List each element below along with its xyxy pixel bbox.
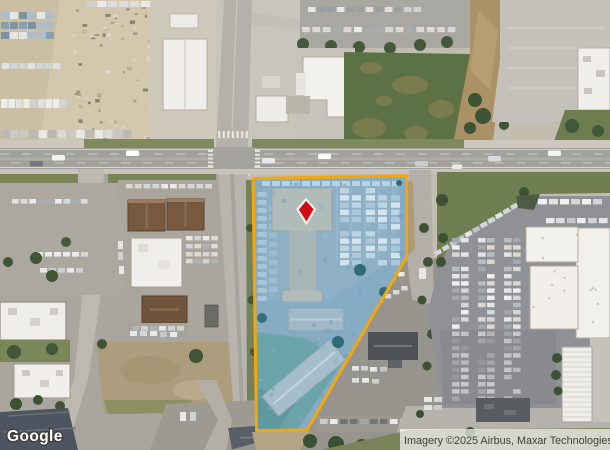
svg-text:Imagery ©2025 Airbus, Maxar Te: Imagery ©2025 Airbus, Maxar Technologies: [404, 435, 610, 447]
svg-text:Google: Google: [7, 428, 63, 445]
